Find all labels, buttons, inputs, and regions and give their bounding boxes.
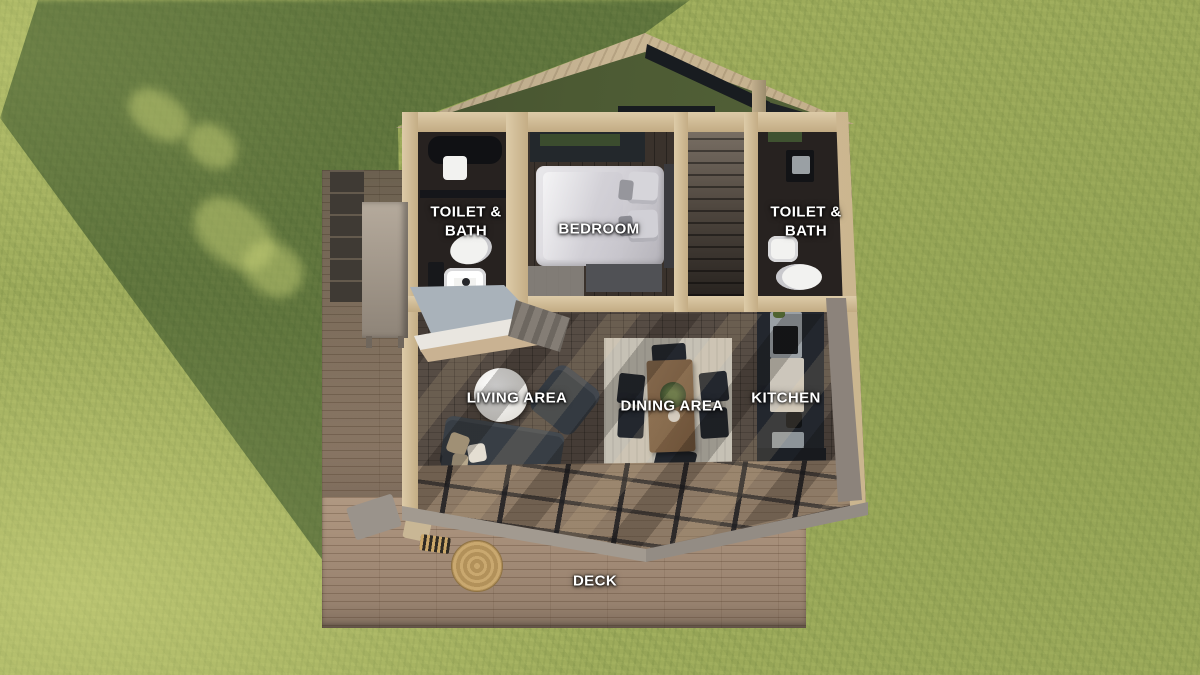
label-toilet-bath-left: TOILET & BATH — [410, 203, 522, 241]
bedroom-rug — [522, 266, 584, 298]
label-kitchen: KITCHEN — [751, 390, 820, 409]
bathroom-window — [768, 132, 802, 142]
cabinet-leg — [366, 336, 372, 348]
toilet-right — [776, 264, 822, 290]
basin-drain — [462, 278, 470, 286]
label-bedroom: BEDROOM — [558, 221, 639, 240]
headboard — [664, 164, 674, 268]
bed-duvet — [543, 172, 623, 260]
round-jute-rug — [451, 540, 503, 592]
throw-pillow — [618, 179, 634, 200]
outdoor-shelf-unit — [330, 170, 364, 302]
shower-partition — [420, 190, 506, 198]
label-toilet-bath-right: TOILET & BATH — [750, 203, 862, 241]
wall-top — [402, 112, 850, 132]
cabinet-leg — [398, 336, 404, 348]
label-deck: DECK — [573, 573, 617, 592]
window-grass-reflection — [540, 134, 620, 146]
wall-bedroom-stairs — [674, 112, 688, 312]
foot-bench — [586, 264, 662, 292]
outdoor-cabinet — [362, 202, 408, 338]
shower-tray — [792, 156, 810, 174]
floorplan-render: TOILET & BATH BEDROOM TOILET & BATH LIVI… — [0, 0, 1200, 675]
label-dining-area: DINING AREA — [620, 398, 723, 417]
washer — [443, 156, 467, 180]
label-living-area: LIVING AREA — [467, 390, 568, 409]
staircase — [688, 126, 744, 312]
